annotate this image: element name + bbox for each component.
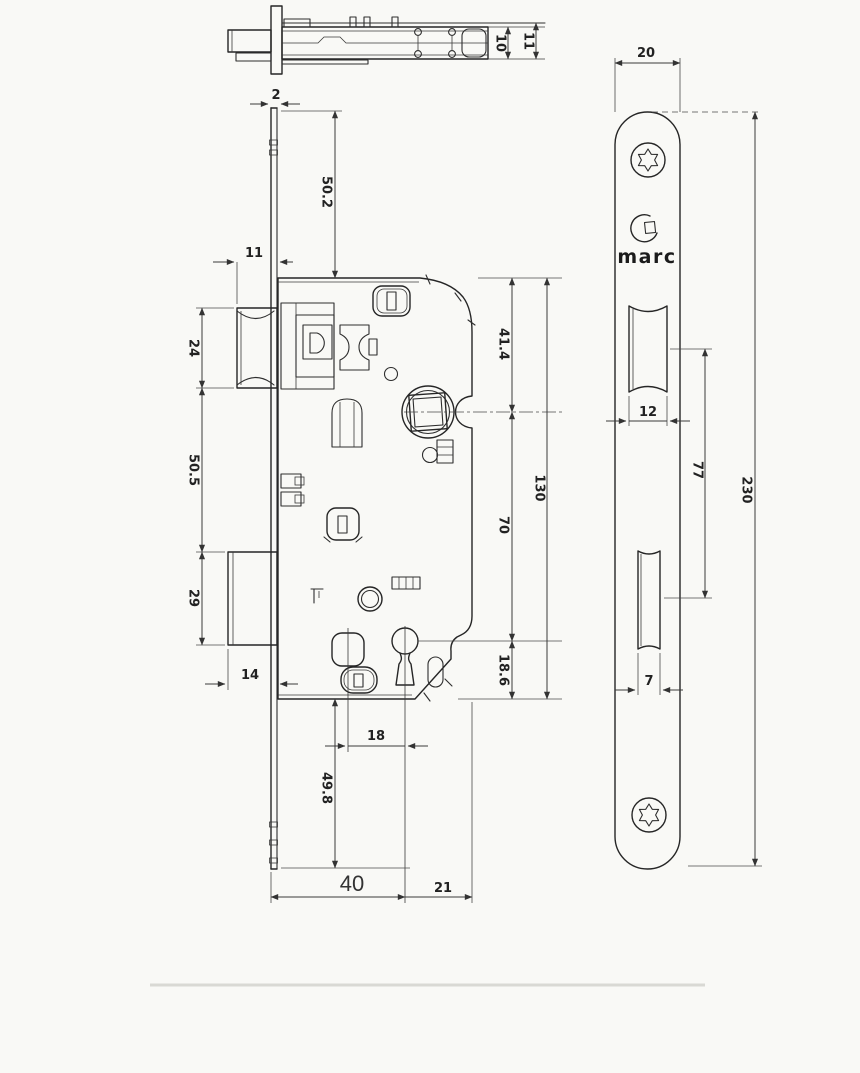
guide-block [340, 325, 369, 370]
dim-label-deadbolt-projection: 14 [241, 668, 259, 683]
dim-label-faceplate-width: 20 [637, 46, 655, 61]
dim-label-latch-to-deadbolt: 50.5 [186, 454, 201, 486]
pin-hole-1 [385, 368, 398, 381]
brand-logo: marc [617, 215, 676, 268]
dim-label-keyhole-to-bottom: 18.6 [496, 654, 511, 686]
lock-internals [281, 286, 562, 903]
dim-label-latch-height: 24 [186, 339, 201, 357]
dim-deadbolt-height: 29 [186, 552, 203, 645]
dim-deadbolt-cutout: 7 [615, 653, 683, 695]
dim-keyhole-to-bottom: 18.6 [496, 641, 513, 699]
faceplate-outline [615, 112, 680, 869]
dim-label-faceplate-length: 230 [739, 476, 754, 503]
dim-latch-height: 24 [186, 308, 203, 388]
dim-post-to-keyhole: 18 [325, 729, 428, 746]
dim-total-depth: 11 [521, 23, 537, 59]
dim-plate-top-to-body: 50.2 [281, 111, 342, 278]
dim-label-spindle-to-keyhole: 70 [496, 516, 511, 534]
faceplate-section [271, 6, 282, 74]
brand-logo-mark-icon [631, 215, 657, 242]
dim-plate-thickness: 2 [250, 88, 300, 104]
torx-screw-top-icon [631, 143, 665, 177]
screw-post-top [373, 286, 410, 316]
latch-guide [281, 303, 334, 389]
latch-cutout [629, 306, 667, 392]
dim-latch-cutout: 12 [606, 396, 690, 426]
dim-latch-to-deadbolt: 50.5 [186, 388, 203, 552]
dim-deadbolt-projection: 14 [205, 649, 298, 690]
faceplate-view: marc 12 7 77 [606, 46, 762, 869]
dim-latch-projection: 11 [213, 246, 293, 304]
lock-technical-drawing: 10 11 2 [0, 0, 860, 1073]
brand-name: marc [617, 246, 676, 268]
dim-faceplate-width: 20 [615, 46, 680, 112]
spring-pack [332, 399, 362, 447]
dim-label-post-to-keyhole: 18 [367, 729, 385, 744]
faceplate-edge [270, 108, 278, 869]
dim-body-top-to-spindle: 41.4 [496, 278, 513, 412]
dim-body-height: 130 [532, 278, 548, 699]
dim-label-body-height: 130 [532, 474, 547, 501]
screw-post-bottom [341, 667, 377, 693]
dim-label-deadbolt-cutout: 7 [644, 674, 653, 689]
dim-label-case-depth: 10 [493, 34, 508, 52]
dim-label-backset: 40 [340, 871, 364, 896]
lever-mark [311, 589, 323, 603]
dim-faceplate-length: 230 [652, 112, 762, 866]
dim-label-body-top-to-spindle: 41.4 [496, 328, 511, 360]
torx-screw-bottom-icon [632, 798, 666, 832]
dim-label-latch-projection: 11 [245, 246, 263, 261]
dim-label-latch-cutout: 12 [639, 405, 657, 420]
dim-label-cutout-spacing: 77 [690, 461, 705, 479]
dim-cutout-spacing: 77 [664, 349, 712, 598]
dim-body-to-plate-bottom: 49.8 [281, 699, 410, 868]
top-view: 10 11 2 [228, 6, 545, 104]
dim-label-plate-top-to-body: 50.2 [319, 176, 334, 208]
latch-bolt-top [228, 30, 271, 61]
dim-label-plate-thickness: 2 [271, 88, 280, 103]
deadbolt [228, 552, 277, 645]
spring-detail-1 [437, 440, 453, 463]
lock-case-outline [278, 278, 472, 699]
scanned-drawing-sheet: 10 11 2 [0, 0, 860, 1073]
screw-post-middle [324, 508, 362, 542]
dim-spindle-to-keyhole: 70 [496, 412, 513, 641]
latch-spring-seat [310, 333, 324, 353]
plate-anchor [281, 474, 304, 506]
dim-label-total-depth: 11 [521, 32, 536, 50]
dim-case-depth: 10 [493, 27, 509, 59]
dim-label-body-to-plate-bottom: 49.8 [319, 772, 334, 804]
lock-body-view: 11 24 50.5 29 14 50.2 [186, 108, 563, 903]
dim-label-keyhole-to-back-edge: 21 [434, 881, 452, 896]
dim-label-deadbolt-height: 29 [186, 589, 201, 607]
pin-hole-2 [423, 448, 438, 463]
